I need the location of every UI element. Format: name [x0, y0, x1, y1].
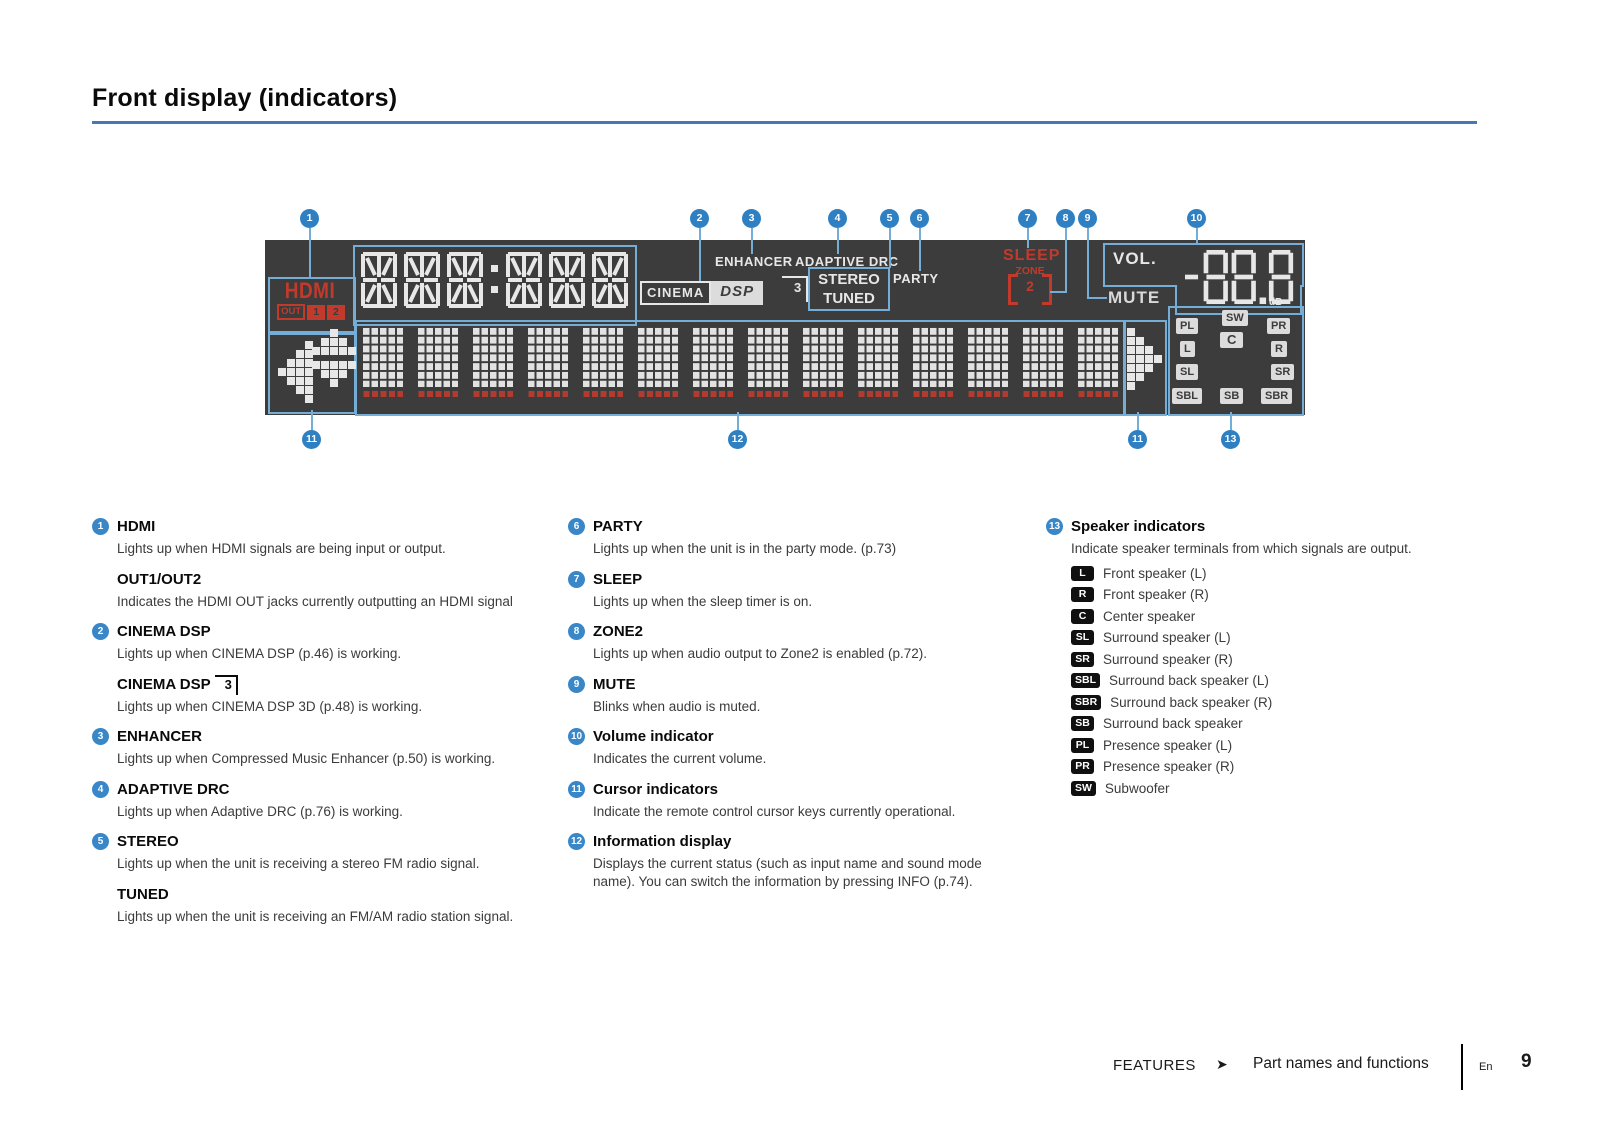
- item-heading: 11Cursor indicators: [568, 781, 1008, 798]
- item-heading: 5STEREO: [92, 833, 537, 850]
- callout-line: [1137, 412, 1139, 430]
- zone2-label: ZONE: [1008, 265, 1052, 277]
- callout-1: 1: [300, 209, 319, 228]
- item-number: 13: [1046, 518, 1063, 535]
- item-heading: 4ADAPTIVE DRC: [92, 781, 537, 798]
- callout-line: [1087, 228, 1089, 299]
- dot-matrix-block: [801, 326, 843, 397]
- callout-line: [1230, 412, 1232, 430]
- dot-matrix-grid: [966, 326, 1008, 387]
- dot-matrix-block: [1076, 326, 1118, 397]
- sub-body: Lights up when CINEMA DSP 3D (p.48) is w…: [117, 698, 537, 716]
- speaker-label: Presence speaker (L): [1103, 738, 1232, 753]
- speaker-label: Presence speaker (R): [1103, 759, 1234, 774]
- footer-divider: [1461, 1044, 1463, 1090]
- sub-heading: OUT1/OUT2: [117, 571, 537, 588]
- hdmi-out1: 1: [307, 305, 325, 320]
- dot-matrix-grid: [691, 326, 733, 387]
- speaker-l-indicator: L: [1180, 341, 1195, 357]
- vol-box-notch: [1175, 285, 1177, 315]
- dot-matrix-block: [581, 326, 623, 397]
- cursor-right-icon: [1127, 328, 1135, 336]
- page-title: Front display (indicators): [92, 84, 397, 113]
- dot-matrix-block: [966, 326, 1008, 397]
- vol-label: VOL.: [1113, 249, 1157, 269]
- callout-3: 3: [742, 209, 761, 228]
- item-title: Speaker indicators: [1071, 518, 1205, 535]
- dot-matrix-underline: [526, 391, 568, 397]
- dot-matrix-grid: [636, 326, 678, 387]
- footer-page-number: 9: [1521, 1051, 1532, 1073]
- item-number: 4: [92, 781, 109, 798]
- item-body: Indicates the current volume.: [593, 750, 1008, 768]
- dot-matrix-grid: [416, 326, 458, 387]
- callout-5: 5: [880, 209, 899, 228]
- dot-matrix-underline: [471, 391, 513, 397]
- item-title: PARTY: [593, 518, 643, 535]
- item-body: Lights up when CINEMA DSP (p.46) is work…: [117, 645, 537, 663]
- cinema-dsp-indicator: CINEMA DSP: [640, 281, 763, 305]
- segment-char: [361, 252, 397, 308]
- dsp-logo: DSP: [711, 281, 763, 305]
- zone2-indicator: ZONE 2: [1008, 265, 1052, 305]
- vol-box-right: [1300, 285, 1302, 315]
- speaker-label: Surround back speaker (R): [1110, 695, 1272, 710]
- dot-matrix-underline: [581, 391, 623, 397]
- cinema-dsp-3d-glyph: 3: [215, 675, 238, 695]
- item-body: Lights up when Compressed Music Enhancer…: [117, 750, 517, 768]
- dot-matrix-block: [911, 326, 953, 397]
- dot-matrix-block: [746, 326, 788, 397]
- dot-matrix-underline: [911, 391, 953, 397]
- item-heading: 6PARTY: [568, 518, 1008, 535]
- dot-matrix-grid: [801, 326, 843, 387]
- dot-matrix: [361, 326, 1118, 397]
- speaker-list-item: PLPresence speaker (L): [1071, 738, 1526, 753]
- callout-6: 6: [910, 209, 929, 228]
- dot-matrix-grid: [361, 326, 403, 387]
- item-body: Blinks when audio is muted.: [593, 698, 1008, 716]
- item-heading: 1HDMI: [92, 518, 537, 535]
- item-body: Lights up when Adaptive DRC (p.76) is wo…: [117, 803, 537, 821]
- speaker-badge: SBR: [1071, 695, 1101, 710]
- sub-body: Indicates the HDMI OUT jacks currently o…: [117, 593, 537, 611]
- item-body: Indicate speaker terminals from which si…: [1071, 540, 1526, 558]
- segment-char: [404, 252, 440, 308]
- dot-matrix-grid: [526, 326, 568, 387]
- item-title: MUTE: [593, 676, 636, 693]
- speaker-list-item: SWSubwoofer: [1071, 781, 1526, 796]
- item-number: 3: [92, 728, 109, 745]
- manual-page: Front display (indicators) HDMI OUT 1 2: [0, 0, 1600, 1132]
- sub-body: Lights up when the unit is receiving an …: [117, 908, 537, 926]
- item-body: Lights up when the sleep timer is on.: [593, 593, 1008, 611]
- item-body: Indicate the remote control cursor keys …: [593, 803, 1008, 821]
- dot-matrix-block: [526, 326, 568, 397]
- speaker-list-item: SBSurround back speaker: [1071, 716, 1526, 731]
- dot-matrix-underline: [361, 391, 403, 397]
- callout-4: 4: [828, 209, 847, 228]
- item-body: Lights up when HDMI signals are being in…: [117, 540, 537, 558]
- footer-language: En: [1479, 1061, 1492, 1073]
- dot-matrix-grid: [911, 326, 953, 387]
- party-indicator: PARTY: [893, 271, 939, 286]
- callout-line: [751, 228, 753, 254]
- dot-matrix-underline: [856, 391, 898, 397]
- speaker-label: Surround back speaker (L): [1109, 673, 1269, 688]
- cursor-down-icon: [312, 361, 320, 369]
- dot-matrix-underline: [746, 391, 788, 397]
- callout-line: [309, 228, 311, 277]
- item-body: Lights up when the unit is receiving a s…: [117, 855, 537, 873]
- speaker-label: Surround speaker (L): [1103, 630, 1231, 645]
- dot-matrix-grid: [471, 326, 513, 387]
- dot-matrix-grid: [581, 326, 623, 387]
- speaker-badge: PL: [1071, 738, 1094, 753]
- item-heading: 2CINEMA DSP: [92, 623, 537, 640]
- item-number: 5: [92, 833, 109, 850]
- item-number: 6: [568, 518, 585, 535]
- callout-11-left: 11: [302, 430, 321, 449]
- sub-heading: CINEMA DSP3: [117, 676, 537, 693]
- dot-matrix-grid: [1076, 326, 1118, 387]
- dot-matrix-underline: [1021, 391, 1063, 397]
- segment-char: [447, 252, 483, 308]
- item-number: 8: [568, 623, 585, 640]
- dot-matrix-block: [361, 326, 403, 397]
- description-column-1: 1HDMI Lights up when HDMI signals are be…: [92, 518, 537, 938]
- item-title: Volume indicator: [593, 728, 714, 745]
- item-title: SLEEP: [593, 571, 642, 588]
- item-body: Displays the current status (such as inp…: [593, 855, 993, 890]
- speaker-sbr-indicator: SBR: [1261, 388, 1292, 404]
- speaker-badge: SBL: [1071, 673, 1100, 688]
- title-underline: [92, 121, 1477, 124]
- dot-matrix-block: [856, 326, 898, 397]
- speaker-label: Surround speaker (R): [1103, 652, 1233, 667]
- dot-matrix-grid: [746, 326, 788, 387]
- speaker-pr-indicator: PR: [1267, 318, 1290, 334]
- speaker-badge: SW: [1071, 781, 1096, 796]
- description-column-3: 13Speaker indicators Indicate speaker te…: [1046, 518, 1526, 802]
- item-title: Information display: [593, 833, 731, 850]
- speaker-list-item: LFront speaker (L): [1071, 566, 1526, 581]
- item-heading: 9MUTE: [568, 676, 1008, 693]
- dot-matrix-grid: [856, 326, 898, 387]
- item-heading: 3ENHANCER: [92, 728, 537, 745]
- dot-matrix-underline: [636, 391, 678, 397]
- speaker-list-item: SBRSurround back speaker (R): [1071, 695, 1526, 710]
- speaker-pl-indicator: PL: [1176, 318, 1198, 334]
- dot-matrix-underline: [416, 391, 458, 397]
- speaker-list-item: CCenter speaker: [1071, 609, 1526, 624]
- callout-13: 13: [1221, 430, 1240, 449]
- enhancer-indicator: ENHANCER: [715, 254, 793, 269]
- speaker-list-item: SLSurround speaker (L): [1071, 630, 1526, 645]
- item-title: Cursor indicators: [593, 781, 718, 798]
- cursor-up-icon: [312, 329, 320, 337]
- item-title: CINEMA DSP: [117, 623, 211, 640]
- speaker-badge: SL: [1071, 630, 1094, 645]
- dot-matrix-block: [471, 326, 513, 397]
- dot-matrix-block: [691, 326, 733, 397]
- speaker-sl-indicator: SL: [1176, 364, 1198, 380]
- footer-subsection: Part names and functions: [1253, 1055, 1429, 1073]
- speaker-sb-indicator: SB: [1220, 388, 1243, 404]
- item-number: 12: [568, 833, 585, 850]
- cinema-dsp-3d-indicator: 3: [782, 276, 808, 302]
- callout-line: [919, 228, 921, 271]
- item-heading: 13Speaker indicators: [1046, 518, 1526, 535]
- callout-10: 10: [1187, 209, 1206, 228]
- speaker-sbl-indicator: SBL: [1172, 388, 1202, 404]
- vol-box-shelf: [1103, 285, 1177, 287]
- callout-2: 2: [690, 209, 709, 228]
- item-title: ENHANCER: [117, 728, 202, 745]
- item-title: ZONE2: [593, 623, 643, 640]
- sleep-indicator: SLEEP: [1003, 247, 1060, 265]
- dot-matrix-underline: [966, 391, 1008, 397]
- segment-display: [361, 252, 628, 308]
- speaker-c-indicator: C: [1220, 332, 1243, 348]
- callout-11-right: 11: [1128, 430, 1147, 449]
- dot-matrix-block: [1021, 326, 1063, 397]
- db-label: dB: [1269, 297, 1282, 308]
- item-title: ADAPTIVE DRC: [117, 781, 230, 798]
- item-number: 10: [568, 728, 585, 745]
- speaker-label: Surround back speaker: [1103, 716, 1243, 731]
- dot-matrix-block: [636, 326, 678, 397]
- stereo-tuned-indicator: STEREO TUNED: [808, 267, 890, 311]
- speaker-label: Center speaker: [1103, 609, 1195, 624]
- item-heading: 7SLEEP: [568, 571, 1008, 588]
- speaker-label: Subwoofer: [1105, 781, 1170, 796]
- speaker-sr-indicator: SR: [1271, 364, 1294, 380]
- speaker-sw-indicator: SW: [1222, 310, 1248, 326]
- hdmi-out-label: OUT: [277, 304, 305, 320]
- speaker-list-item: RFront speaker (R): [1071, 587, 1526, 602]
- callout-line: [1027, 228, 1029, 248]
- segment-char: [592, 252, 628, 308]
- dot-matrix-block: [416, 326, 458, 397]
- speaker-badge: PR: [1071, 759, 1094, 774]
- callout-line: [1065, 228, 1067, 293]
- speaker-label: Front speaker (L): [1103, 566, 1207, 581]
- item-number: 1: [92, 518, 109, 535]
- item-title: STEREO: [117, 833, 179, 850]
- item-title: HDMI: [117, 518, 155, 535]
- dot-matrix-underline: [801, 391, 843, 397]
- callout-7: 7: [1018, 209, 1037, 228]
- footer-arrow-icon: ➤: [1216, 1056, 1228, 1073]
- segment-char: [506, 252, 542, 308]
- callout-line: [837, 228, 839, 254]
- front-display-panel: HDMI OUT 1 2 CINEMA DSP 3 ENHANCER ADAPT…: [265, 240, 1305, 415]
- item-number: 7: [568, 571, 585, 588]
- speaker-badge: SB: [1071, 716, 1094, 731]
- segment-char: [549, 252, 585, 308]
- dot-matrix-grid: [1021, 326, 1063, 387]
- hdmi-out2: 2: [327, 305, 345, 320]
- speaker-r-indicator: R: [1271, 341, 1287, 357]
- item-heading: 8ZONE2: [568, 623, 1008, 640]
- item-body: Lights up when audio output to Zone2 is …: [593, 645, 1008, 663]
- callout-line: [1087, 297, 1107, 299]
- callout-line: [1050, 291, 1067, 293]
- speaker-list-item: SBLSurround back speaker (L): [1071, 673, 1526, 688]
- tuned-indicator: TUNED: [810, 289, 888, 308]
- footer-section: FEATURES: [1113, 1057, 1196, 1074]
- hdmi-indicator: HDMI: [272, 279, 348, 304]
- speaker-badge: C: [1071, 609, 1094, 624]
- callout-line: [889, 228, 891, 268]
- callout-line: [737, 412, 739, 430]
- stereo-indicator: STEREO: [810, 270, 888, 289]
- cursor-left-icon: [278, 341, 286, 349]
- callout-8: 8: [1056, 209, 1075, 228]
- cinema-logo: CINEMA: [640, 281, 711, 305]
- item-body: Lights up when the unit is in the party …: [593, 540, 1008, 558]
- speaker-list-item: PRPresence speaker (R): [1071, 759, 1526, 774]
- speaker-badge: R: [1071, 587, 1094, 602]
- callout-line: [699, 228, 701, 281]
- hdmi-out-indicators: OUT 1 2: [272, 304, 350, 320]
- mute-indicator: MUTE: [1108, 288, 1160, 308]
- segment-colon: [490, 252, 499, 308]
- speaker-list-item: SRSurround speaker (R): [1071, 652, 1526, 667]
- dot-matrix-underline: [1076, 391, 1118, 397]
- callout-9: 9: [1078, 209, 1097, 228]
- sub-heading: TUNED: [117, 886, 537, 903]
- item-number: 2: [92, 623, 109, 640]
- item-heading: 12Information display: [568, 833, 1008, 850]
- description-column-2: 6PARTY Lights up when the unit is in the…: [568, 518, 1008, 903]
- callout-line: [311, 410, 313, 430]
- speaker-label: Front speaker (R): [1103, 587, 1209, 602]
- speaker-badge: L: [1071, 566, 1094, 581]
- zone2-number: 2: [1008, 278, 1052, 294]
- speaker-badge: SR: [1071, 652, 1094, 667]
- item-number: 11: [568, 781, 585, 798]
- callout-12: 12: [728, 430, 747, 449]
- item-number: 9: [568, 676, 585, 693]
- callout-line: [1196, 228, 1198, 244]
- item-heading: 10Volume indicator: [568, 728, 1008, 745]
- dot-matrix-underline: [691, 391, 733, 397]
